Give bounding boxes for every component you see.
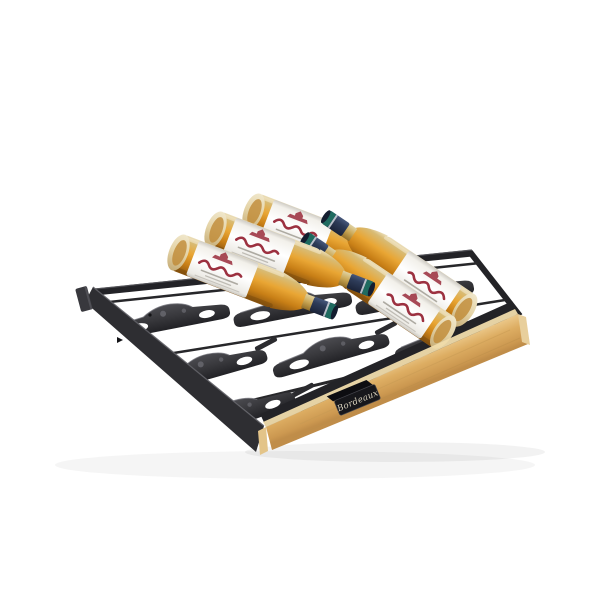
product-shadow: [245, 442, 545, 462]
product-photo: Bordeaux: [0, 0, 600, 600]
wine-shelf-scene: Bordeaux: [0, 0, 600, 600]
rail-screw-hole: [148, 313, 151, 316]
